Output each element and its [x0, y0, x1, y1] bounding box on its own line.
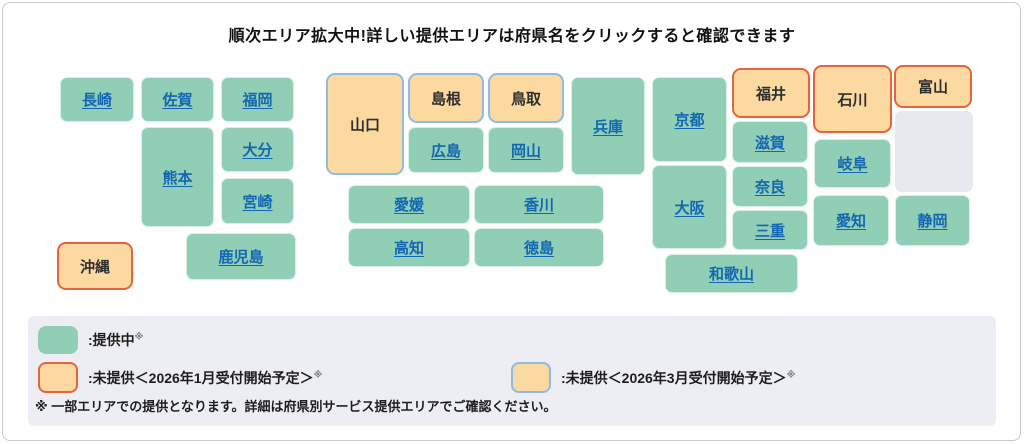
prefecture-link-kumamoto[interactable]: 熊本: [162, 167, 192, 188]
prefecture-tile-kyoto: 京都: [652, 77, 727, 162]
prefecture-link-tokushima[interactable]: 徳島: [524, 237, 554, 258]
prefecture-link-fukuoka[interactable]: 福岡: [242, 89, 272, 110]
prefecture-link-oita[interactable]: 大分: [242, 139, 272, 160]
prefecture-label-ishikawa: 石川: [837, 89, 867, 110]
legend-label-mar2026-text: :未提供＜2026年3月受付開始予定＞: [561, 370, 787, 386]
legend-swatch-available: [38, 326, 78, 354]
prefecture-link-kyoto[interactable]: 京都: [674, 109, 704, 130]
prefecture-tile-nara: 奈良: [732, 166, 808, 207]
prefecture-link-nara[interactable]: 奈良: [755, 176, 785, 197]
prefecture-link-shiga[interactable]: 滋賀: [755, 132, 785, 153]
prefecture-link-kochi[interactable]: 高知: [394, 237, 424, 258]
prefecture-link-okayama[interactable]: 岡山: [511, 140, 541, 161]
prefecture-tile-tokushima: 徳島: [474, 228, 604, 267]
prefecture-link-saga[interactable]: 佐賀: [162, 89, 192, 110]
prefecture-tile-fukuoka: 福岡: [221, 77, 294, 122]
prefecture-tile-osaka: 大阪: [652, 165, 727, 249]
prefecture-link-miyazaki[interactable]: 宮崎: [242, 191, 272, 212]
prefecture-tile-kumamoto: 熊本: [141, 127, 214, 227]
prefecture-tile-aichi: 愛知: [813, 195, 889, 246]
legend-footnote-mark: ※: [314, 369, 323, 379]
legend-label-mar2026: :未提供＜2026年3月受付開始予定＞※: [561, 368, 795, 388]
prefecture-tile-hiroshima: 広島: [408, 127, 484, 173]
legend-label-available-text: :提供中: [88, 332, 135, 348]
legend-item-mar2026: :未提供＜2026年3月受付開始予定＞※: [511, 362, 795, 393]
prefecture-label-yamaguchi: 山口: [350, 114, 380, 135]
prefecture-tile-ehime: 愛媛: [348, 185, 470, 224]
prefecture-tile-toyama: 富山: [894, 65, 972, 108]
prefecture-tile-hyogo: 兵庫: [571, 77, 645, 175]
legend-swatch-jan2026: [38, 362, 78, 393]
prefecture-tile-saga: 佐賀: [141, 77, 214, 122]
prefecture-link-osaka[interactable]: 大阪: [674, 197, 704, 218]
prefecture-tile-fukui: 福井: [732, 68, 810, 118]
legend-label-jan2026-text: :未提供＜2026年1月受付開始予定＞: [88, 370, 314, 386]
prefecture-tile-shiga: 滋賀: [732, 121, 808, 163]
legend-note: ※ 一部エリアでの提供となります。詳細は府県別サービス提供エリアでご確認ください…: [35, 396, 557, 415]
prefecture-link-shizuoka[interactable]: 静岡: [917, 210, 947, 231]
legend-swatch-mar2026: [511, 362, 551, 393]
legend-footnote-mark: ※: [135, 331, 144, 341]
prefecture-tile-okinawa: 沖縄: [57, 242, 133, 290]
prefecture-label-fukui: 福井: [756, 83, 786, 104]
prefecture-tile-shizuoka: 静岡: [895, 195, 970, 246]
prefecture-tile-empty-region: [895, 111, 973, 192]
prefecture-tile-kagoshima: 鹿児島: [186, 233, 296, 280]
prefecture-link-kagoshima[interactable]: 鹿児島: [218, 246, 263, 267]
prefecture-tile-mie: 三重: [732, 210, 808, 250]
legend-item-jan2026: :未提供＜2026年1月受付開始予定＞※: [38, 362, 322, 393]
prefecture-label-shimane: 島根: [431, 88, 461, 109]
prefecture-label-tottori: 鳥取: [511, 88, 541, 109]
prefecture-label-toyama: 富山: [918, 76, 948, 97]
prefecture-tile-miyazaki: 宮崎: [221, 178, 294, 224]
prefecture-link-hiroshima[interactable]: 広島: [431, 140, 461, 161]
prefecture-tile-oita: 大分: [221, 127, 294, 172]
prefecture-tile-nagasaki: 長崎: [60, 77, 134, 122]
prefecture-link-aichi[interactable]: 愛知: [836, 210, 866, 231]
prefecture-tile-wakayama: 和歌山: [665, 254, 798, 293]
prefecture-tile-kochi: 高知: [348, 228, 470, 267]
prefecture-tile-yamaguchi: 山口: [326, 73, 404, 175]
prefecture-tile-ishikawa: 石川: [813, 65, 892, 133]
prefecture-link-kagawa[interactable]: 香川: [524, 194, 554, 215]
prefecture-tile-shimane: 島根: [408, 73, 484, 123]
prefecture-link-nagasaki[interactable]: 長崎: [82, 89, 112, 110]
prefecture-tile-kagawa: 香川: [474, 185, 604, 224]
prefecture-link-mie[interactable]: 三重: [755, 220, 785, 241]
prefecture-link-hyogo[interactable]: 兵庫: [593, 116, 623, 137]
service-area-content: 順次エリア拡大中!詳しい提供エリアは府県名をクリックすると確認できます 長崎佐賀…: [0, 0, 1024, 444]
prefecture-link-ehime[interactable]: 愛媛: [394, 194, 424, 215]
legend-label-jan2026: :未提供＜2026年1月受付開始予定＞※: [88, 368, 322, 388]
prefecture-label-okinawa: 沖縄: [80, 256, 110, 277]
prefecture-tile-okayama: 岡山: [488, 127, 564, 173]
legend-label-available: :提供中※: [88, 330, 143, 350]
legend-panel: :提供中※ :未提供＜2026年1月受付開始予定＞※ :未提供＜2026年3月受…: [28, 316, 996, 426]
prefecture-link-gifu[interactable]: 岐阜: [837, 153, 867, 174]
legend-item-available: :提供中※: [38, 326, 143, 354]
prefecture-tile-gifu: 岐阜: [814, 139, 891, 188]
legend-footnote-mark: ※: [787, 369, 796, 379]
prefecture-tile-tottori: 鳥取: [488, 73, 564, 123]
prefecture-link-wakayama[interactable]: 和歌山: [709, 263, 754, 284]
